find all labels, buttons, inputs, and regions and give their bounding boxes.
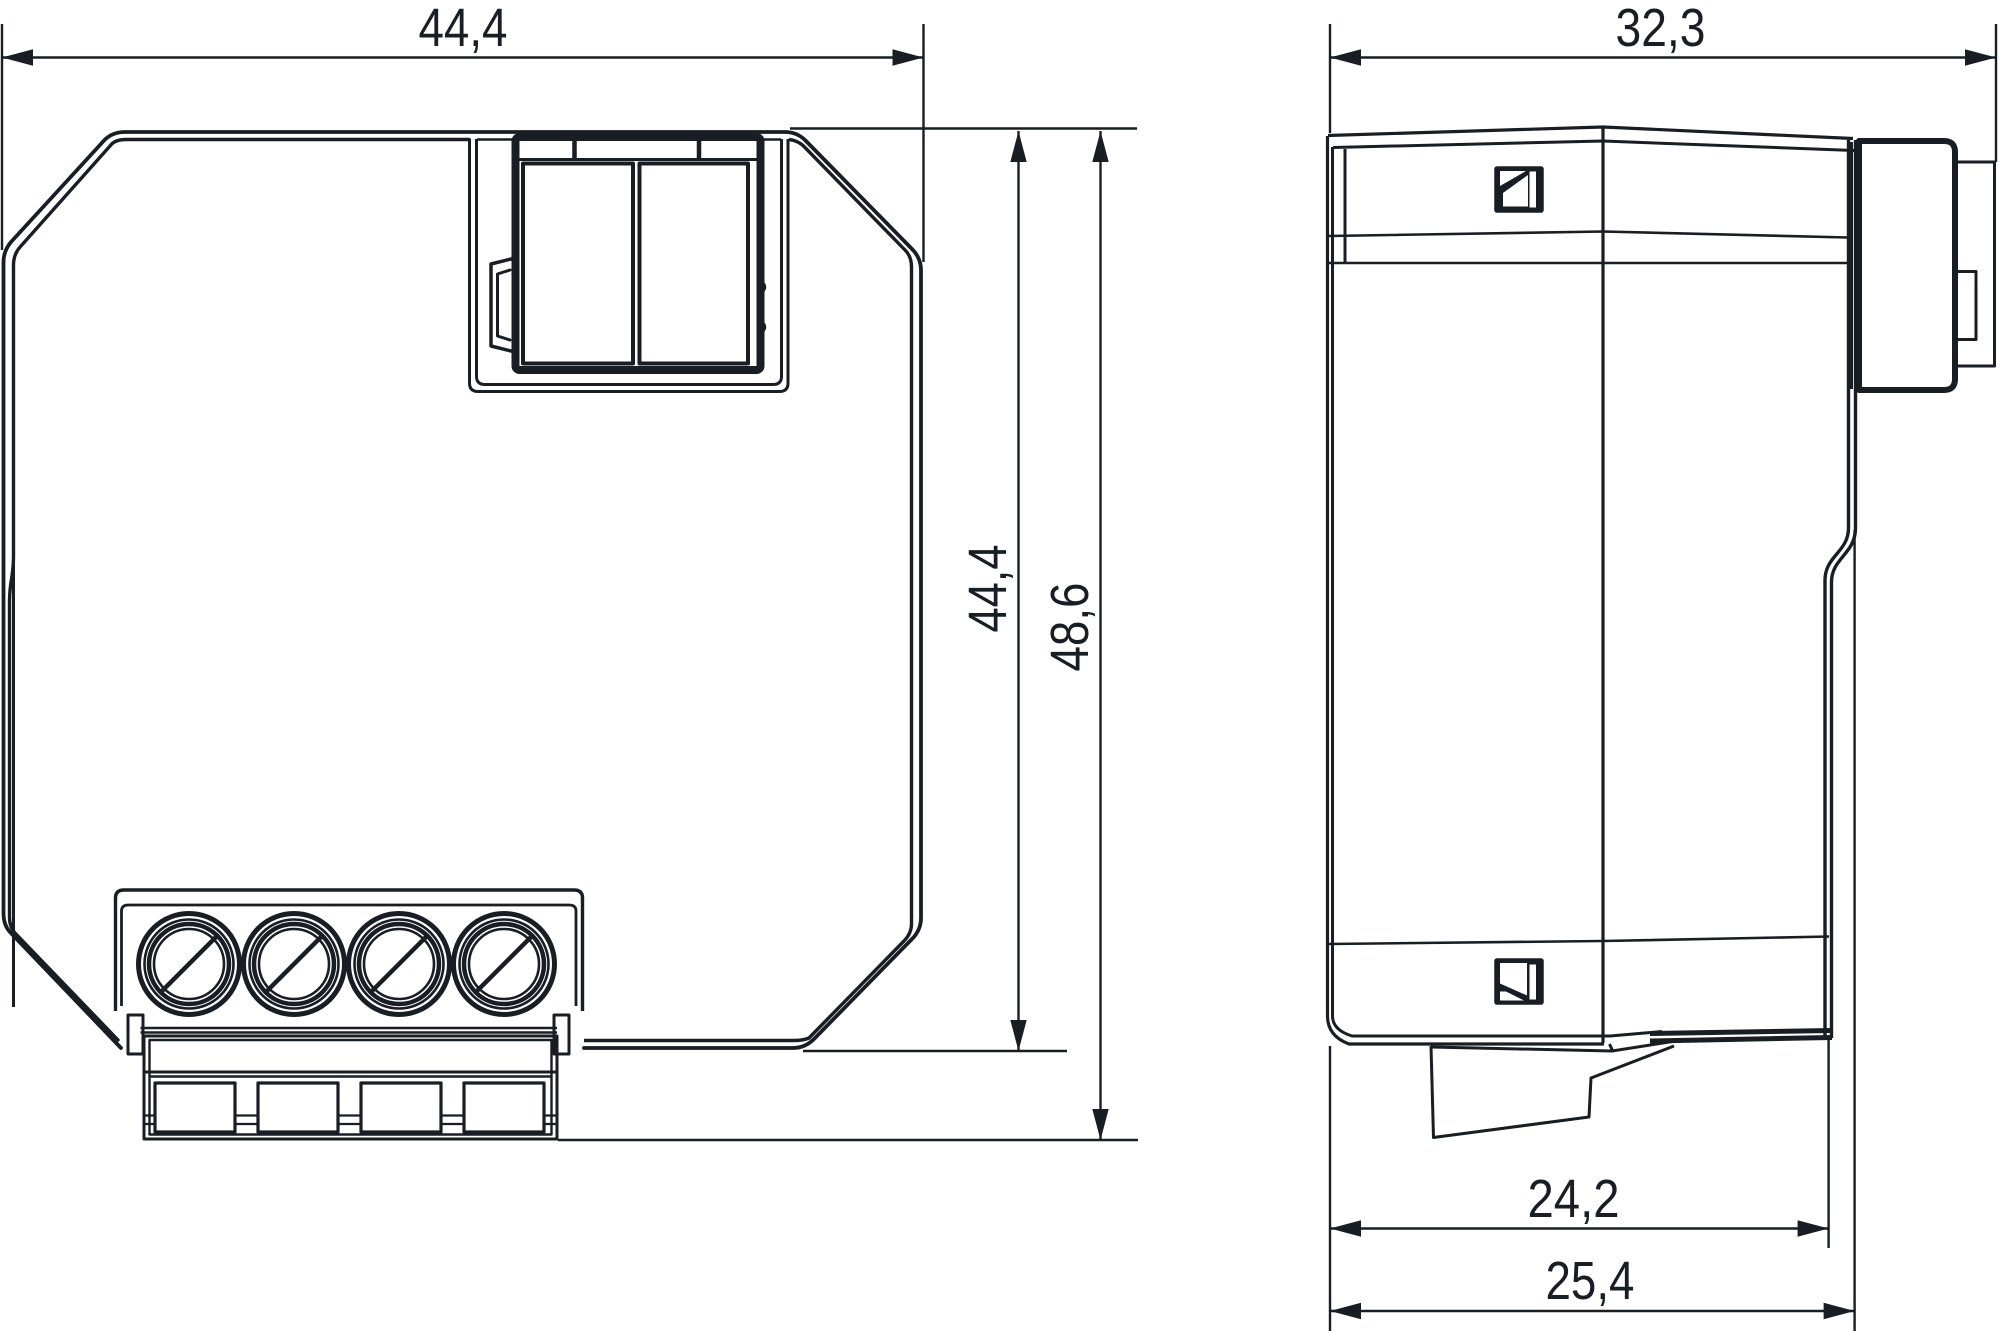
- svg-text:24,2: 24,2: [1528, 1169, 1620, 1229]
- svg-text:44,4: 44,4: [958, 545, 1018, 633]
- svg-text:32,3: 32,3: [1616, 0, 1706, 58]
- svg-text:25,4: 25,4: [1546, 1251, 1635, 1311]
- svg-text:44,4: 44,4: [419, 0, 508, 58]
- svg-text:48,6: 48,6: [1040, 583, 1100, 672]
